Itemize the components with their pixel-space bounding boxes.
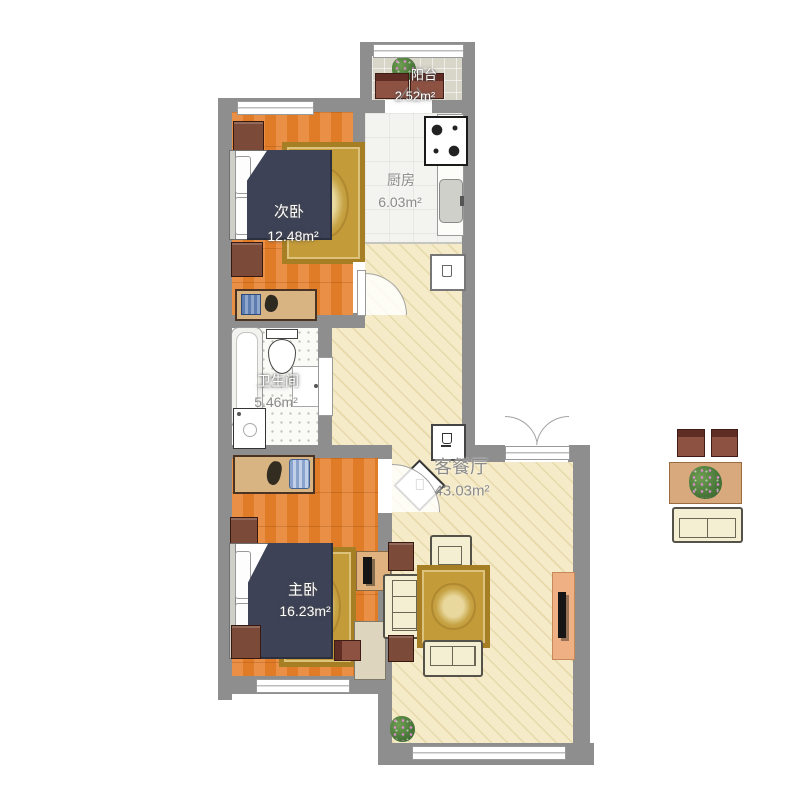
gas-stove[interactable] bbox=[424, 116, 468, 166]
dispenser-icon bbox=[442, 265, 452, 277]
master-wardrobe[interactable] bbox=[233, 455, 315, 494]
living-end-table-top[interactable] bbox=[388, 542, 414, 571]
sink-faucet-icon bbox=[460, 196, 464, 206]
toilet-tank[interactable] bbox=[266, 329, 298, 339]
living-plant[interactable] bbox=[390, 716, 415, 742]
second-bedroom-desk[interactable] bbox=[235, 289, 317, 321]
boot-icon bbox=[265, 460, 284, 486]
kitchen-sink[interactable] bbox=[439, 179, 463, 223]
second-bedroom-nightstand-top[interactable] bbox=[233, 121, 264, 153]
second-bedroom-door-leaf[interactable] bbox=[357, 270, 366, 316]
entry-door-sill[interactable] bbox=[505, 446, 570, 460]
wall bbox=[573, 445, 590, 765]
bag-icon bbox=[264, 294, 280, 313]
entry-door-arc-right[interactable] bbox=[536, 416, 569, 448]
outside-dining-table[interactable] bbox=[669, 462, 742, 504]
cup-icon bbox=[442, 433, 452, 444]
balcony-window[interactable] bbox=[373, 44, 464, 58]
master-bedroom-name-label: 主卧 bbox=[288, 579, 318, 600]
armchair-cushion bbox=[438, 546, 462, 565]
kitchen-name-label: 厨房 bbox=[387, 170, 415, 190]
bathroom-area-label: 5.46m² bbox=[254, 394, 298, 410]
outside-loveseat-cushions bbox=[679, 518, 736, 538]
sofa-cushions bbox=[392, 580, 417, 631]
second-bedroom-bed[interactable] bbox=[229, 150, 332, 240]
living-room-window[interactable] bbox=[412, 746, 566, 760]
water-dispenser[interactable] bbox=[430, 254, 466, 291]
tv-icon bbox=[363, 557, 372, 584]
second-bedroom-window[interactable] bbox=[237, 101, 314, 115]
bathroom-name-label: 卫生间 bbox=[257, 371, 299, 391]
living-end-table-bottom[interactable] bbox=[388, 635, 414, 662]
hanging-clothes-icon bbox=[289, 459, 310, 489]
living-room-rug[interactable] bbox=[417, 565, 490, 648]
floor-plan-canvas: 阳台 2.52m² 厨房 6.03m² 次卧 12.48m² 卫生间 5.46m… bbox=[0, 0, 800, 800]
master-nightstand-bottom[interactable] bbox=[231, 625, 261, 659]
living-tv-cabinet[interactable] bbox=[552, 572, 575, 660]
living-dining-area-label: 43.03m² bbox=[434, 483, 489, 500]
washer-knob-icon bbox=[237, 412, 241, 416]
master-desk-chair[interactable] bbox=[334, 640, 361, 661]
desk-chair-icon bbox=[241, 294, 261, 315]
tv-icon bbox=[558, 592, 566, 638]
master-bedroom-window[interactable] bbox=[256, 679, 350, 693]
entry-door-arc-left[interactable] bbox=[505, 416, 538, 448]
bed-duvet bbox=[247, 150, 332, 240]
master-bedroom-area-label: 16.23m² bbox=[279, 603, 330, 619]
outside-chair-left[interactable] bbox=[677, 429, 705, 457]
outside-chair-right[interactable] bbox=[711, 429, 738, 457]
balcony-name-label: 阳台 bbox=[411, 65, 437, 84]
balcony-area-label: 2.52m² bbox=[395, 89, 435, 104]
outside-loveseat[interactable] bbox=[672, 507, 743, 543]
washer-drum-icon bbox=[243, 423, 257, 437]
loveseat-cushions bbox=[430, 646, 476, 666]
living-loveseat[interactable] bbox=[423, 640, 483, 677]
master-door-opening bbox=[378, 459, 392, 513]
second-bedroom-name-label: 次卧 bbox=[274, 201, 304, 222]
washing-machine[interactable] bbox=[233, 408, 266, 449]
kitchen-hall-divider-line bbox=[365, 242, 462, 244]
second-bedroom-nightstand-bottom[interactable] bbox=[231, 242, 263, 277]
second-bedroom-area-label: 12.48m² bbox=[267, 228, 318, 244]
living-dining-name-label: 客餐厅 bbox=[434, 453, 488, 479]
bathroom-door-leaf[interactable] bbox=[318, 357, 333, 416]
kitchen-area-label: 6.03m² bbox=[378, 194, 422, 210]
table-centerpiece-plant bbox=[689, 466, 722, 499]
cup-base-icon bbox=[441, 445, 451, 447]
